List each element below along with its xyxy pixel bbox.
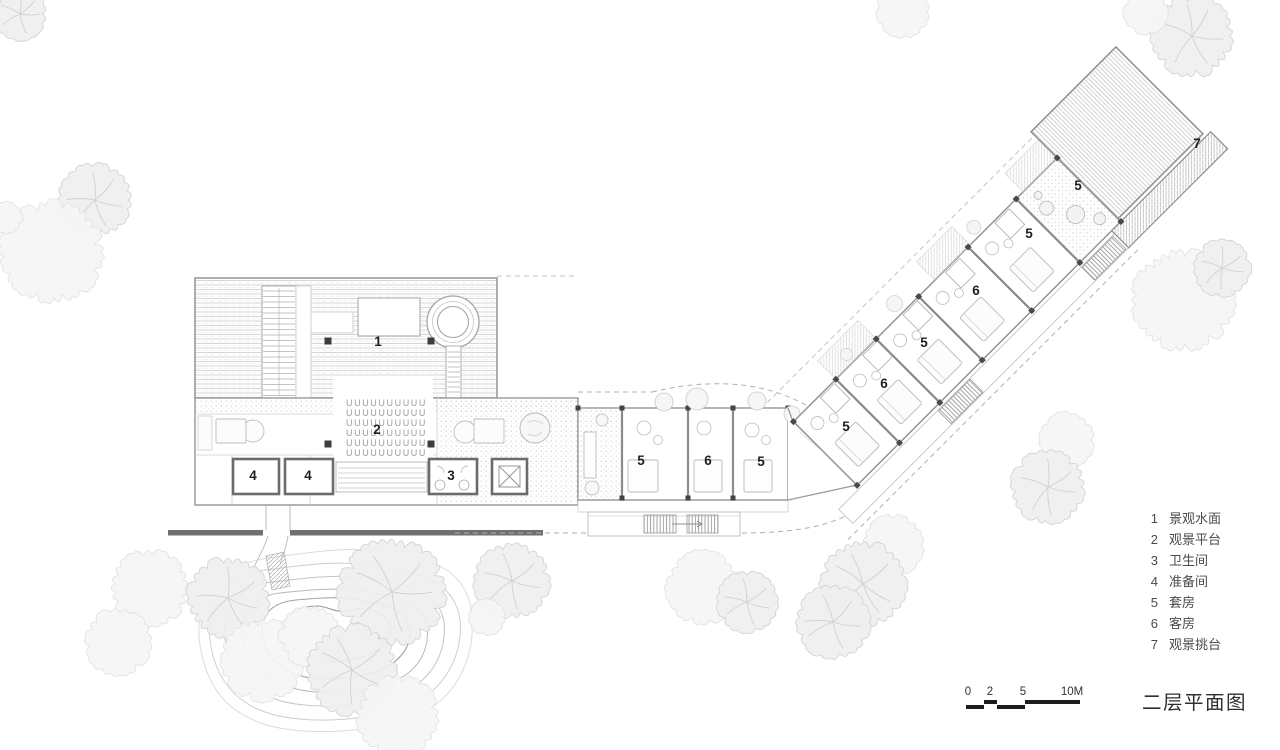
legend-item-number: 7 [1146, 637, 1158, 652]
scale-bar [966, 700, 1080, 709]
seat-row: UUUUUUUUUU [346, 408, 427, 418]
legend-item: 2观景平台 [1146, 529, 1276, 550]
tree-symbol [716, 571, 778, 633]
scale-tick-label: 2 [987, 686, 993, 698]
tree-symbol [876, 0, 929, 38]
legend-item-number: 1 [1146, 511, 1158, 526]
room-label: 5 [637, 453, 645, 468]
tree-symbol [1194, 239, 1252, 298]
legend-item: 6客房 [1146, 613, 1276, 634]
room-label: 5 [1074, 178, 1082, 193]
legend-item: 3卫生间 [1146, 550, 1276, 571]
seat-row: UUUUUUUUUU [346, 438, 427, 448]
room-label: 6 [704, 453, 712, 468]
room-label: 3 [447, 468, 455, 483]
seating-rows: UUUUUUUUUUUUUUUUUUUUUUUUUUUUUUUUUUUUUUUU… [346, 398, 427, 458]
room-label: 6 [972, 283, 980, 298]
legend-item-label: 观景平台 [1169, 529, 1221, 548]
site-wall-right [290, 530, 543, 536]
legend-item-number: 2 [1146, 532, 1158, 547]
legend-item-label: 客房 [1169, 613, 1195, 632]
room-label: 7 [1193, 136, 1201, 151]
legend-item-label: 准备间 [1169, 571, 1208, 590]
legend: 1景观水面2观景平台3卫生间4准备间5套房6客房7观景挑台 [1146, 508, 1276, 655]
drawing-title: 二层平面图 [1142, 686, 1247, 715]
legend-item-number: 5 [1146, 595, 1158, 610]
scale-tick-label: 10M [1061, 686, 1083, 698]
legend-item-number: 3 [1146, 553, 1158, 568]
floor-plan-page: UUUUUUUUUUUUUUUUUUUUUUUUUUUUUUUUUUUUUUUU… [0, 0, 1280, 750]
tree-symbol [356, 675, 439, 750]
legend-item: 4准备间 [1146, 571, 1276, 592]
legend-item: 1景观水面 [1146, 508, 1276, 529]
seat-row: UUUUUUUUUU [346, 418, 427, 428]
legend-item-label: 卫生间 [1169, 550, 1208, 569]
room-label: 4 [304, 468, 312, 483]
scale-tick-label: 0 [965, 686, 971, 698]
scale-tick-label: 5 [1020, 686, 1026, 698]
room-label: 1 [374, 334, 382, 349]
seat-row: UUUUUUUUUU [346, 398, 427, 408]
room-label: 5 [920, 335, 928, 350]
room-label: 5 [757, 454, 765, 469]
room-label: 5 [842, 419, 850, 434]
legend-item: 7观景挑台 [1146, 634, 1276, 655]
room-label: 5 [1025, 226, 1033, 241]
legend-item: 5套房 [1146, 592, 1276, 613]
room-label: 4 [249, 468, 257, 483]
legend-item-number: 4 [1146, 574, 1158, 589]
seat-row: UUUUUUUUUU [346, 448, 427, 458]
tree-symbol [796, 585, 872, 659]
tree-symbol [84, 609, 152, 677]
plan-drawing: UUUUUUUUUUUUUUUUUUUUUUUUUUUUUUUUUUUUUUUU… [0, 0, 1280, 750]
room-label: 6 [880, 376, 888, 391]
legend-item-label: 景观水面 [1169, 508, 1221, 527]
legend-item-label: 套房 [1169, 592, 1195, 611]
seat-row: UUUUUUUUUU [346, 428, 427, 438]
scale-bar-ticks: 02510M [965, 686, 1083, 698]
legend-item-number: 6 [1146, 616, 1158, 631]
legend-item-label: 观景挑台 [1169, 634, 1221, 653]
tree-symbol [0, 0, 46, 42]
site-wall-left [168, 530, 263, 536]
room-label: 2 [373, 422, 381, 437]
